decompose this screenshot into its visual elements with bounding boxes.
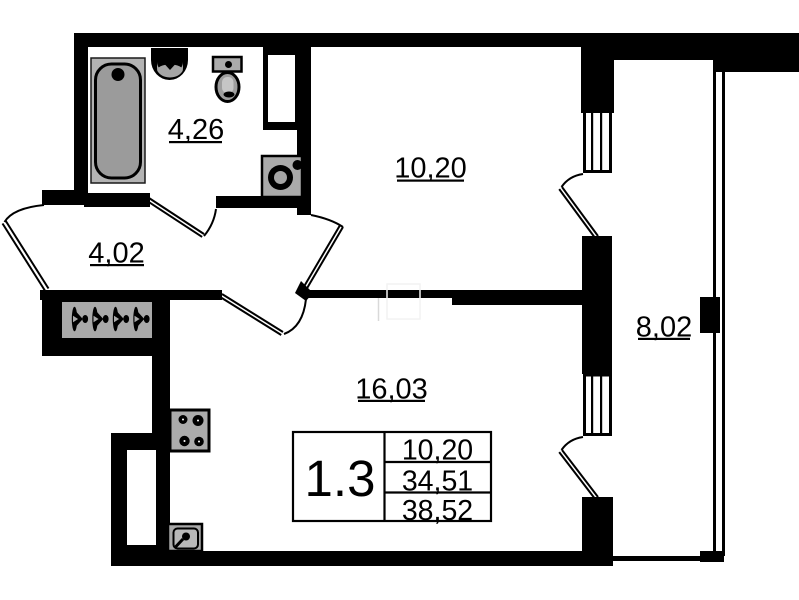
svg-text:1.3: 1.3 [305, 450, 376, 507]
svg-text:34,51: 34,51 [402, 466, 473, 498]
svg-text:38,52: 38,52 [402, 495, 473, 527]
svg-text:10,20: 10,20 [402, 435, 473, 467]
